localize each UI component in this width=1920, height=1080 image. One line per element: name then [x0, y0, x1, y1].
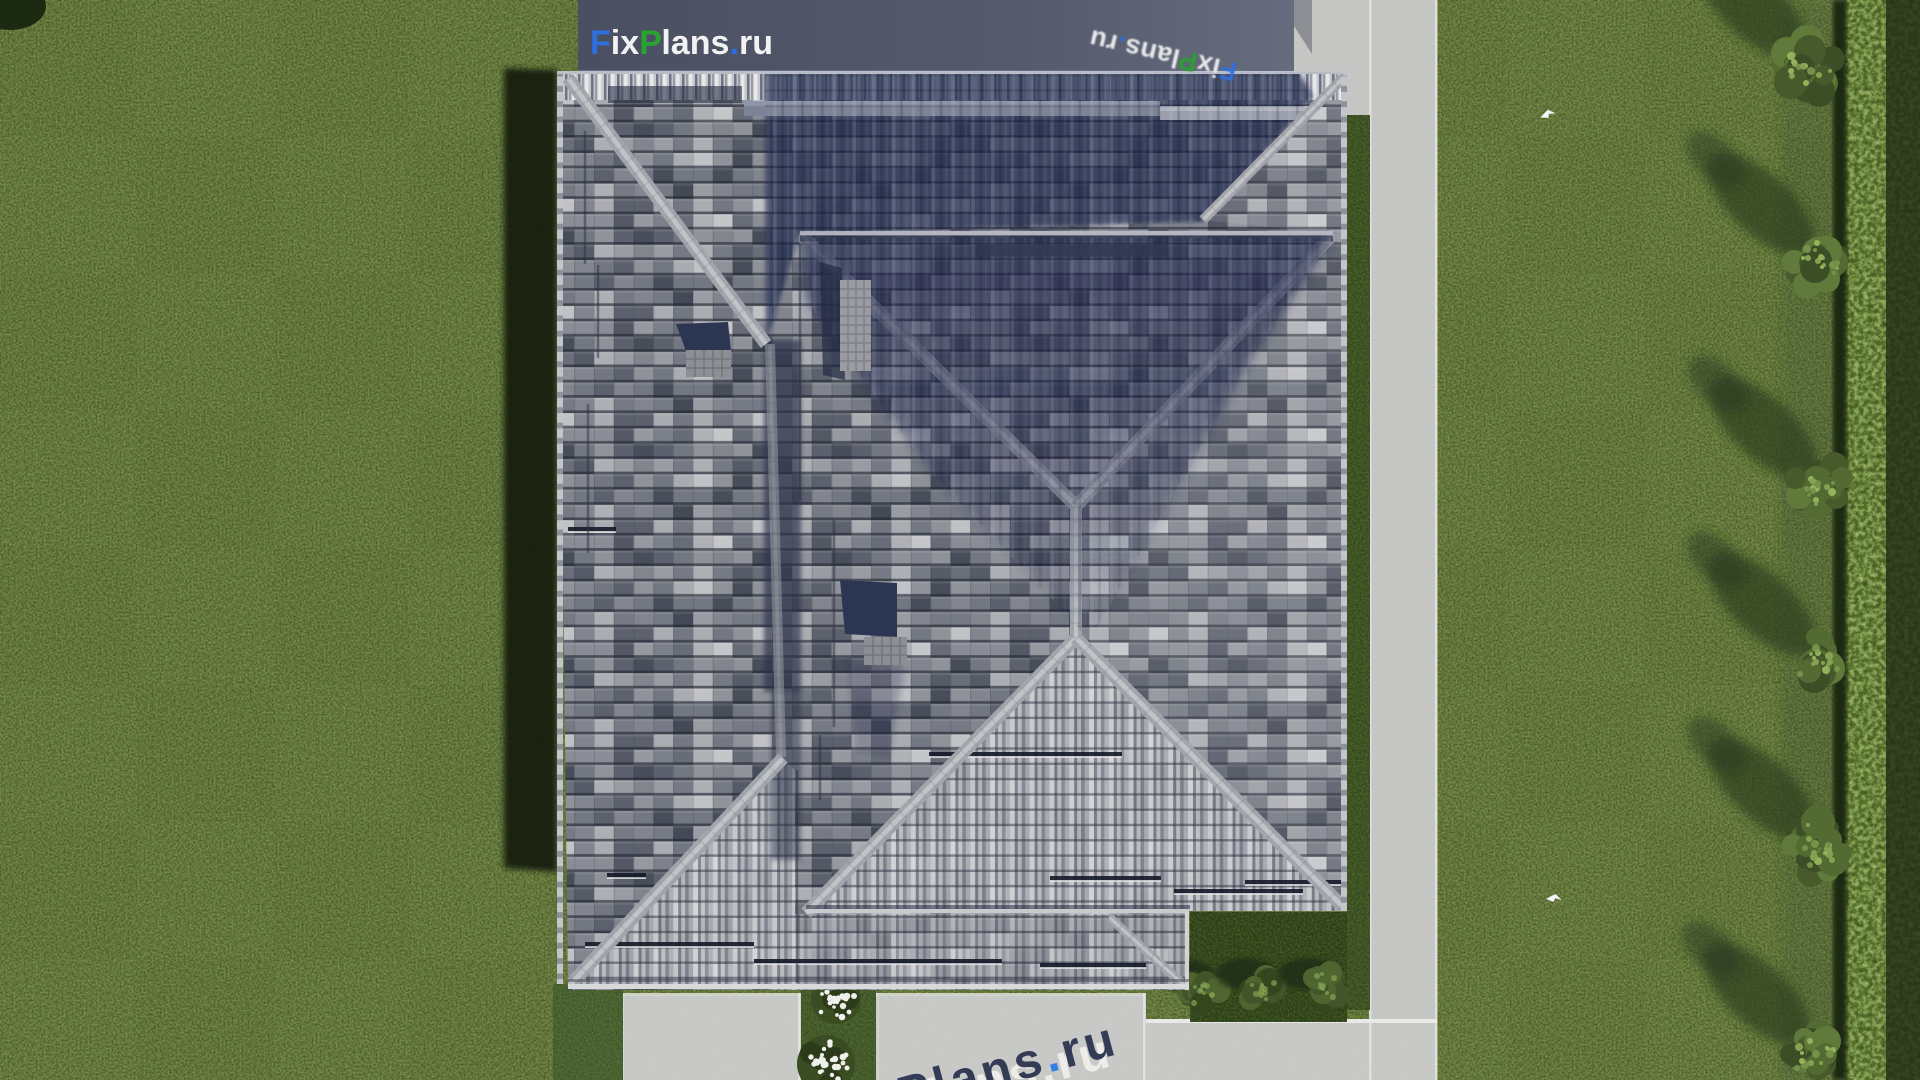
- svg-text:F i x P l a n s . r u: F i x P l a n s . r u: [590, 24, 773, 62]
